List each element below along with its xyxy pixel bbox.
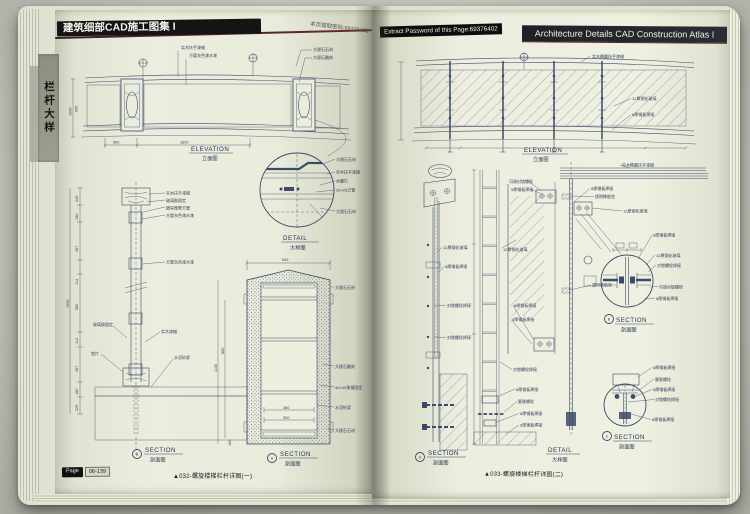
detail-label: 大理石石材 — [336, 156, 356, 162]
book-photo: 栏杆大样 建筑细部CAD施工图集 I 本页提取密码:69376402 — [0, 0, 750, 514]
dim: 1000 — [69, 108, 73, 116]
dim: 1620 — [180, 141, 188, 145]
dim: 114 — [75, 279, 79, 285]
section-label: 方管灰色漆水漆 — [166, 212, 194, 218]
chapter-tab: 栏杆大样 — [38, 54, 59, 162]
right-figure-caption: ▲033-螺旋楼梯栏杆详图(二) — [484, 469, 563, 479]
dim: 1000 — [66, 300, 70, 308]
detail-label: 6厚钢板焊接 — [652, 416, 674, 422]
section-label: 12厚钢化玻璃 — [443, 244, 467, 250]
detail-label: 对锁螺栓焊接 — [655, 396, 679, 402]
detail-label: 实木扶手漆蜡 — [336, 169, 360, 175]
detail-label: 实木椭圆扶手漆蜡 — [622, 162, 654, 168]
page-number-badge: Page 06-139 — [62, 467, 110, 478]
section-label: 对锁螺栓焊接 — [447, 302, 471, 308]
page-badge-label: Page — [62, 467, 83, 477]
right-center-detail-drawing: 可调对锁螺栓 5厚钢板焊接 12厚钢化玻璃 6厚钢板焊接 5厚钢板焊接 对锁螺栓… — [472, 170, 580, 464]
right-header-banner: Architecture Details CAD Construction At… — [522, 25, 727, 43]
detail-label: 25×25方管 — [336, 187, 355, 193]
section-label: 40×40角钢固定 — [335, 384, 362, 390]
detail-label: 可调对锁螺栓 — [659, 284, 683, 290]
section-label: 大理石石材 — [335, 284, 355, 290]
detail-label: 6厚钢板焊接 — [653, 364, 675, 370]
detail-label: 6厚钢板焊接 — [520, 422, 542, 428]
leader-curve — [315, 120, 346, 156]
section-label: 对锁螺栓焊接 — [447, 334, 471, 340]
left-figure-caption: ▲032-螺旋楼梯栏杆详图(一) — [173, 471, 252, 480]
detail-label: 对锁螺栓焊接 — [657, 262, 681, 268]
right-circle-c-drawing: 6厚钢板焊接 膨胀螺栓 6厚钢板焊接 对锁螺栓焊接 6厚钢板焊接 C SECTI… — [603, 364, 680, 451]
elev-label: 实木扶手漆蜡 — [181, 44, 205, 50]
detail-label: 12厚钢化玻璃 — [503, 246, 527, 252]
detail-label: 木螺钉 — [336, 178, 348, 184]
crosshair-marker-icon — [519, 52, 529, 70]
dim: 1130 — [214, 364, 218, 372]
drawing-title-cn: 立面图 — [533, 155, 549, 163]
section-label: 实木扶手漆蜡 — [166, 190, 190, 196]
section-bubble-letter: B — [608, 318, 611, 322]
detail-label: 6厚钢板焊接 — [520, 410, 542, 416]
section-bubble-letter: C — [606, 435, 609, 439]
right-circle-b-drawing: 8厚钢板焊接 12厚钢化玻璃 对锁螺栓焊接 可调对锁螺栓 8厚钢板焊接 B SE… — [601, 232, 683, 334]
carved-post — [293, 79, 315, 131]
drawing-title: SECTION — [616, 317, 647, 324]
elev-label: 12厚钢化玻璃 — [632, 95, 656, 101]
dim: 229 — [75, 196, 79, 202]
section-label: 垫片 — [91, 350, 99, 356]
section-label: 水泥砂浆 — [335, 404, 351, 410]
password-box: Extract Password of this Page:69376402 — [380, 23, 502, 37]
detail-label: 可调对锁螺栓 — [509, 178, 533, 184]
detail-label: 膨胀螺栓 — [518, 398, 534, 404]
drawing-title-cn: 剖面图 — [150, 456, 166, 464]
left-page-drawings: 实木扶手漆蜡 方管灰色漆水漆 大理石石材 大理石雕刻 500 1620 1000… — [65, 42, 370, 474]
left-elevation-drawing: 实木扶手漆蜡 方管灰色漆水漆 大理石石材 大理石雕刻 500 1620 1000… — [69, 44, 352, 162]
dim: 457 — [75, 246, 79, 252]
detail-label: 膨胀螺栓 — [655, 376, 671, 382]
detail-label: 对锁螺栓焊接 — [513, 366, 537, 372]
drawing-title-cn: 剖面图 — [285, 460, 301, 468]
dim: 457 — [75, 366, 79, 372]
detail-label: 透明橡胶垫 — [595, 193, 615, 199]
drawing-title-cn: 立面图 — [202, 154, 218, 162]
section-label: 水泥砂浆 — [174, 354, 190, 360]
left-header-banner: 建筑细部CAD施工图集 I — [57, 19, 261, 37]
drawing-title: SECTION — [428, 450, 459, 457]
bolt-icon — [538, 342, 552, 347]
detail-label: 6厚钢板焊接 — [653, 386, 675, 392]
section-label: 大理石石材 — [335, 427, 355, 433]
section-label: 玻璃胶固定 — [166, 197, 186, 203]
dim: 540 — [282, 258, 288, 262]
bolt-icon — [430, 188, 450, 196]
drawing-title: ELEVATION — [191, 146, 229, 153]
drawing-title-cn: 剖面图 — [433, 459, 449, 467]
elev-label: 方管灰色漆水漆 — [189, 52, 217, 58]
dim: 800 — [221, 348, 225, 354]
carved-post — [121, 79, 143, 131]
drawing-title: SECTION — [614, 434, 645, 441]
dim: 580 — [75, 304, 79, 310]
section-bubble-letter: A — [419, 456, 422, 460]
drawing-title: DETAIL — [548, 447, 572, 454]
elev-label: 6厚钢板焊接 — [632, 111, 654, 117]
dim: 229 — [75, 405, 79, 411]
detail-label: 12厚钢化玻璃 — [656, 252, 680, 258]
drawing-title: SECTION — [145, 447, 176, 454]
drawing-title-cn: 剖面图 — [619, 443, 635, 451]
detail-bubble — [584, 256, 592, 264]
page-badge-number: 06-139 — [85, 467, 110, 477]
elev-label: 大理石雕刻 — [313, 54, 333, 60]
section-bubble-letter: B — [136, 453, 139, 457]
drawing-title: SECTION — [280, 451, 311, 458]
chapter-strip — [30, 66, 38, 162]
right-page-drawings: 实木椭圆扶手漆蜡 12厚钢化玻璃 6厚钢板焊接 ELEVATION 立面图 — [376, 44, 726, 476]
detail-label: 5厚钢板焊接 — [512, 316, 534, 322]
section-label: 方管灰色漆水漆 — [166, 259, 194, 265]
detail-label: 8厚钢板焊接 — [653, 232, 675, 238]
drawing-title-cn: 大样图 — [290, 244, 306, 252]
left-stone-section-drawing: 540 360 500 1130 800 100 大理石石材 — [214, 258, 362, 468]
section-label: 6厚钢板焊接 — [445, 263, 467, 269]
detail-label: 6厚钢板焊接 — [516, 386, 538, 392]
elev-label: 实木椭圆扶手漆蜡 — [592, 53, 624, 59]
dim: 500 — [113, 141, 119, 145]
detail-label: 8厚钢板焊接 — [656, 295, 678, 301]
dim: 360 — [283, 406, 289, 410]
drawing-title-cn: 剖面图 — [621, 326, 637, 334]
detail-label: 大理石石材 — [336, 208, 356, 214]
section-bubble-letter: A — [271, 457, 274, 461]
detail-label: 8厚钢板焊接 — [591, 185, 613, 191]
dim: 114 — [75, 338, 79, 344]
right-elevation-drawing: 实木椭圆扶手漆蜡 12厚钢化玻璃 6厚钢板焊接 ELEVATION 立面图 — [398, 52, 696, 163]
drawing-title-cn: 大样图 — [552, 456, 568, 464]
section-label: 镀锌厚壁方管 — [166, 205, 190, 211]
section-label: 玻璃胶固定 — [93, 321, 113, 327]
dim: 900 — [75, 106, 79, 112]
section-label: 实木漆蜡 — [161, 328, 177, 334]
dim: 160 — [75, 389, 79, 395]
chapter-tab-label: 栏杆大样 — [41, 81, 56, 135]
drawing-title: ELEVATION — [524, 147, 562, 154]
drawing-title: DETAIL — [283, 235, 307, 242]
crosshair-marker-icon — [248, 53, 258, 75]
detail-label: 6厚钢板焊接 — [514, 302, 536, 308]
detail-label: 12厚钢化玻璃 — [623, 208, 647, 214]
right-page: Extract Password of this Page:69376402 A… — [372, 10, 730, 498]
detail-label: 5厚钢板焊接 — [511, 186, 533, 192]
leader-line — [178, 51, 186, 85]
section-label: 大理石雕刻 — [335, 363, 355, 369]
elev-label: 大理石石材 — [313, 46, 333, 52]
bolt-icon — [577, 206, 590, 211]
dim: 160 — [75, 214, 79, 220]
dim: 500 — [283, 416, 289, 420]
right-glass-section-drawing: 12厚钢化玻璃 6厚钢板焊接 对锁螺栓焊接 对锁螺栓焊接 A SECTION 剖… — [416, 165, 472, 467]
left-detail-drawing: 大理石石材 实木扶手漆蜡 木螺钉 25×25方管 大理石石材 DETAIL 大样… — [260, 153, 360, 252]
left-page: 建筑细部CAD施工图集 I 本页提取密码:69376402 — [55, 10, 372, 494]
open-book: 栏杆大样 建筑细部CAD施工图集 I 本页提取密码:69376402 — [18, 6, 740, 505]
left-post-section-drawing: 229 160 457 114 580 114 457 160 229 1000 — [66, 182, 247, 464]
dim: 100 — [228, 440, 232, 446]
